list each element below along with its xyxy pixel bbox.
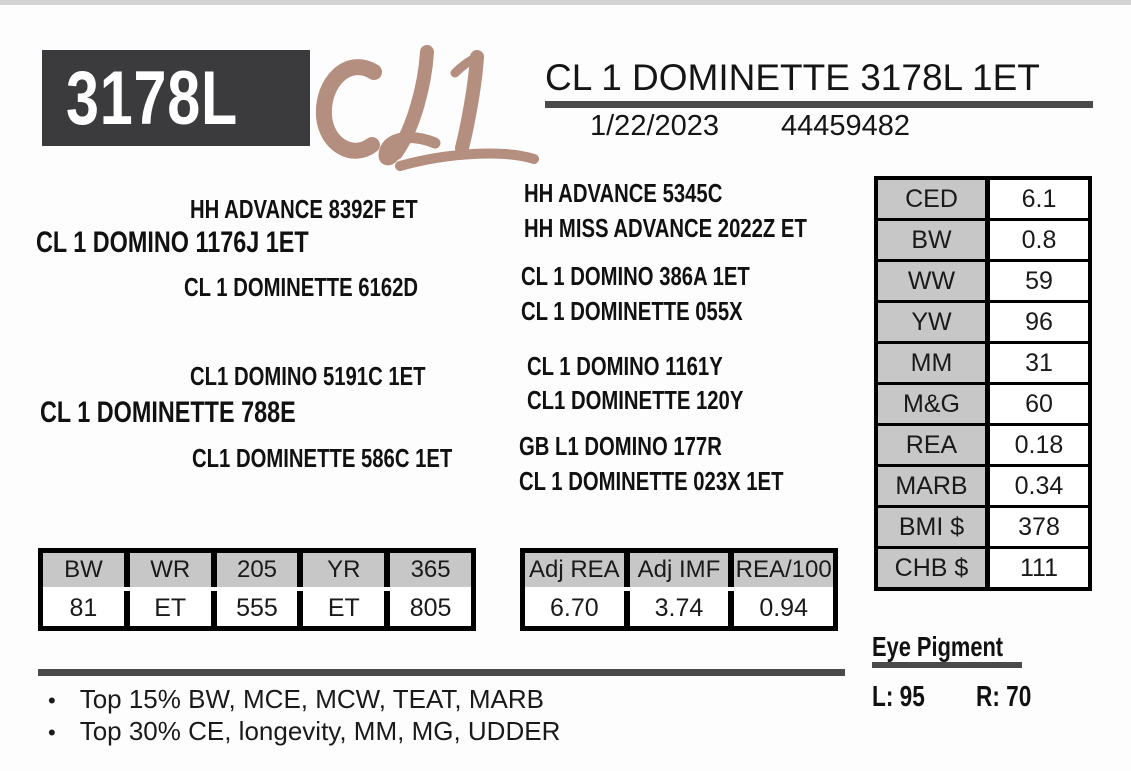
perf-value: 555 (217, 591, 298, 626)
perf-value: 805 (390, 591, 471, 626)
pedigree-ggp-8: CL 1 DOMINETTE 023X 1ET (519, 466, 858, 497)
footer-divider-rule (38, 669, 845, 676)
footnote-text: Top 30% CE, longevity, MM, MG, UDDER (80, 716, 561, 747)
animal-name: CL 1 DOMINETTE 3178L 1ET (545, 57, 1093, 99)
epd-row-label: BMI $ (878, 508, 985, 546)
epd-row-value: 378 (990, 508, 1088, 546)
perf-header: 205 (217, 553, 298, 587)
eye-pigment-left: L: 95 (872, 681, 940, 714)
catalog-page: 3178L CL 1 DOMINETTE 3178L 1ET 1/22/2023… (0, 0, 1131, 771)
perf-header: YR (303, 553, 384, 587)
pedigree-ggp-5: CL 1 DOMINO 1161Y (527, 351, 778, 382)
epd-row-label: YW (878, 303, 985, 341)
pedigree-sire-granddam: CL 1 DOMINETTE 6162D (184, 272, 484, 303)
perf-value: 81 (43, 591, 124, 626)
epd-row-value: 31 (990, 344, 1088, 382)
epd-table: CED 6.1 BW 0.8 WW 59 YW 96 MM 31 M&G 60 … (874, 176, 1092, 591)
epd-row-label: CHB $ (878, 549, 985, 587)
epd-row-label: M&G (878, 385, 985, 423)
footnote: • Top 30% CE, longevity, MM, MG, UDDER (48, 716, 560, 747)
page-top-edge (0, 0, 1131, 5)
pedigree-sire-grandsire: HH ADVANCE 8392F ET (190, 194, 482, 225)
pedigree-ggp-2: HH MISS ADVANCE 2022Z ET (524, 213, 887, 244)
carcass-table: Adj REA Adj IMF REA/100 6.70 3.74 0.94 (520, 548, 838, 631)
eye-pigment-rule (872, 662, 1022, 668)
carcass-value: 6.70 (525, 591, 624, 626)
pedigree-dam: CL 1 DOMINETTE 788E (40, 396, 368, 430)
pedigree-dam-grandsire: CL1 DOMINO 5191C 1ET (190, 361, 492, 392)
epd-row-label: CED (878, 180, 985, 218)
footnote: • Top 15% BW, MCE, MCW, TEAT, MARB (48, 684, 544, 715)
epd-row-value: 111 (990, 549, 1088, 587)
eye-pigment-values: L: 95 R: 70 (872, 681, 1047, 714)
epd-row-value: 0.34 (990, 467, 1088, 505)
eye-pigment-title: Eye Pigment (872, 631, 1040, 663)
perf-header: WR (130, 553, 211, 587)
perf-header: BW (43, 553, 124, 587)
cl1-brand-logo-icon (308, 40, 544, 187)
perf-value: ET (303, 591, 384, 626)
tag-number-box: 3178L (42, 50, 310, 146)
carcass-value: 0.94 (734, 591, 833, 626)
epd-row-label: MM (878, 344, 985, 382)
performance-table: BW WR 205 YR 365 81 ET 555 ET 805 (38, 548, 476, 631)
epd-row-value: 6.1 (990, 180, 1088, 218)
epd-row-label: MARB (878, 467, 985, 505)
tag-number: 3178L (66, 55, 238, 142)
bullet-icon: • (48, 688, 56, 714)
name-underline-rule (545, 101, 1093, 108)
bullet-icon: • (48, 720, 56, 746)
pedigree-dam-granddam: CL1 DOMINETTE 586C 1ET (192, 443, 526, 474)
carcass-header: REA/100 (734, 553, 833, 587)
epd-row-label: WW (878, 262, 985, 300)
perf-value: ET (130, 591, 211, 626)
pedigree-ggp-7: GB L1 DOMINO 177R (519, 431, 779, 462)
pedigree-ggp-3: CL 1 DOMINO 386A 1ET (521, 261, 814, 292)
carcass-value: 3.74 (630, 591, 729, 626)
pedigree-ggp-4: CL 1 DOMINETTE 055X (521, 296, 805, 327)
eye-pigment-right: R: 70 (976, 681, 1047, 714)
epd-row-value: 0.8 (990, 221, 1088, 259)
epd-row-value: 60 (990, 385, 1088, 423)
registration-number: 44459482 (781, 110, 910, 143)
epd-row-label: BW (878, 221, 985, 259)
epd-row-label: REA (878, 426, 985, 464)
pedigree-ggp-1: HH ADVANCE 5345C (524, 178, 778, 209)
epd-row-value: 0.18 (990, 426, 1088, 464)
perf-header: 365 (390, 553, 471, 587)
pedigree-sire: CL 1 DOMINO 1176J 1ET (36, 226, 386, 260)
pedigree-ggp-6: CL1 DOMINETTE 120Y (527, 385, 804, 416)
birth-date: 1/22/2023 (590, 110, 719, 143)
carcass-header: Adj REA (525, 553, 624, 587)
footnote-text: Top 15% BW, MCE, MCW, TEAT, MARB (80, 684, 544, 715)
carcass-header: Adj IMF (630, 553, 729, 587)
epd-row-value: 96 (990, 303, 1088, 341)
epd-row-value: 59 (990, 262, 1088, 300)
